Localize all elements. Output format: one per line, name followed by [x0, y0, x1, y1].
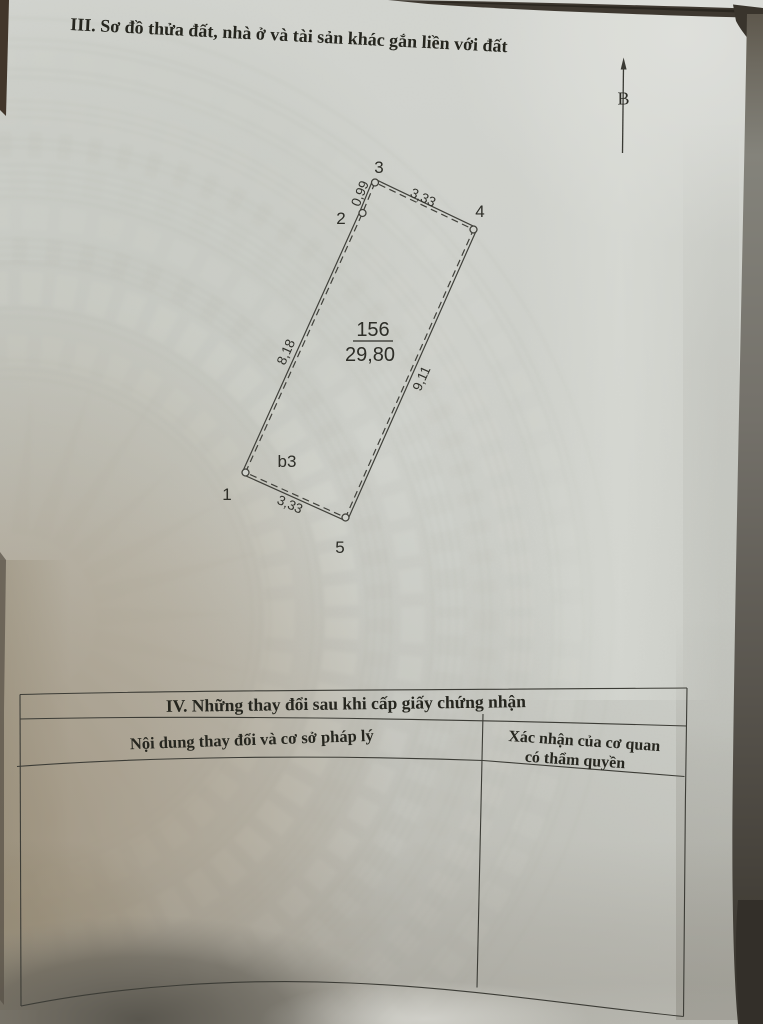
svg-text:3: 3	[374, 158, 383, 177]
svg-text:5: 5	[335, 538, 344, 557]
svg-text:4: 4	[475, 202, 484, 221]
svg-text:b3: b3	[278, 452, 297, 471]
svg-text:B: B	[618, 89, 630, 109]
svg-text:29,80: 29,80	[345, 344, 395, 366]
svg-text:1: 1	[222, 485, 231, 504]
svg-text:156: 156	[356, 319, 389, 341]
svg-text:2: 2	[336, 209, 345, 228]
